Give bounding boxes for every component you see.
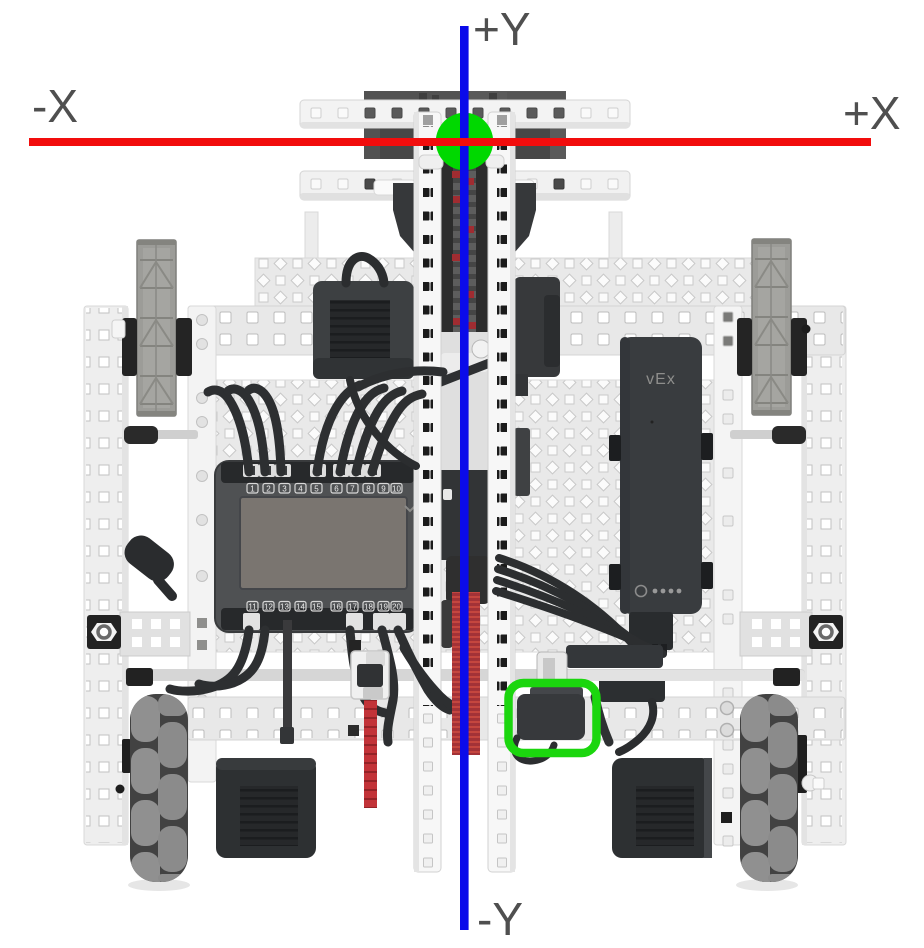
svg-text:11: 11 <box>248 603 257 612</box>
svg-text:3: 3 <box>282 485 287 494</box>
svg-text:15: 15 <box>312 603 321 612</box>
svg-text:2: 2 <box>266 485 271 494</box>
svg-text:12: 12 <box>264 603 273 612</box>
svg-text:20: 20 <box>392 603 401 612</box>
svg-text:10: 10 <box>392 485 401 494</box>
svg-text:14: 14 <box>296 603 305 612</box>
svg-text:-X: -X <box>32 80 78 132</box>
svg-text:1: 1 <box>250 485 255 494</box>
svg-text:7: 7 <box>350 485 355 494</box>
svg-text:+Y: +Y <box>473 3 531 55</box>
svg-text:8: 8 <box>366 485 371 494</box>
svg-text:19: 19 <box>379 603 388 612</box>
svg-text:+X: +X <box>843 87 901 139</box>
svg-text:vΕx: vΕx <box>646 371 676 388</box>
svg-text:9: 9 <box>381 485 386 494</box>
svg-text:5: 5 <box>314 485 319 494</box>
svg-text:18: 18 <box>364 603 373 612</box>
svg-text:-Y: -Y <box>477 893 523 945</box>
svg-text:16: 16 <box>332 603 341 612</box>
svg-text:4: 4 <box>298 485 303 494</box>
svg-text:6: 6 <box>334 485 339 494</box>
svg-text:17: 17 <box>348 603 357 612</box>
svg-text:13: 13 <box>280 603 289 612</box>
